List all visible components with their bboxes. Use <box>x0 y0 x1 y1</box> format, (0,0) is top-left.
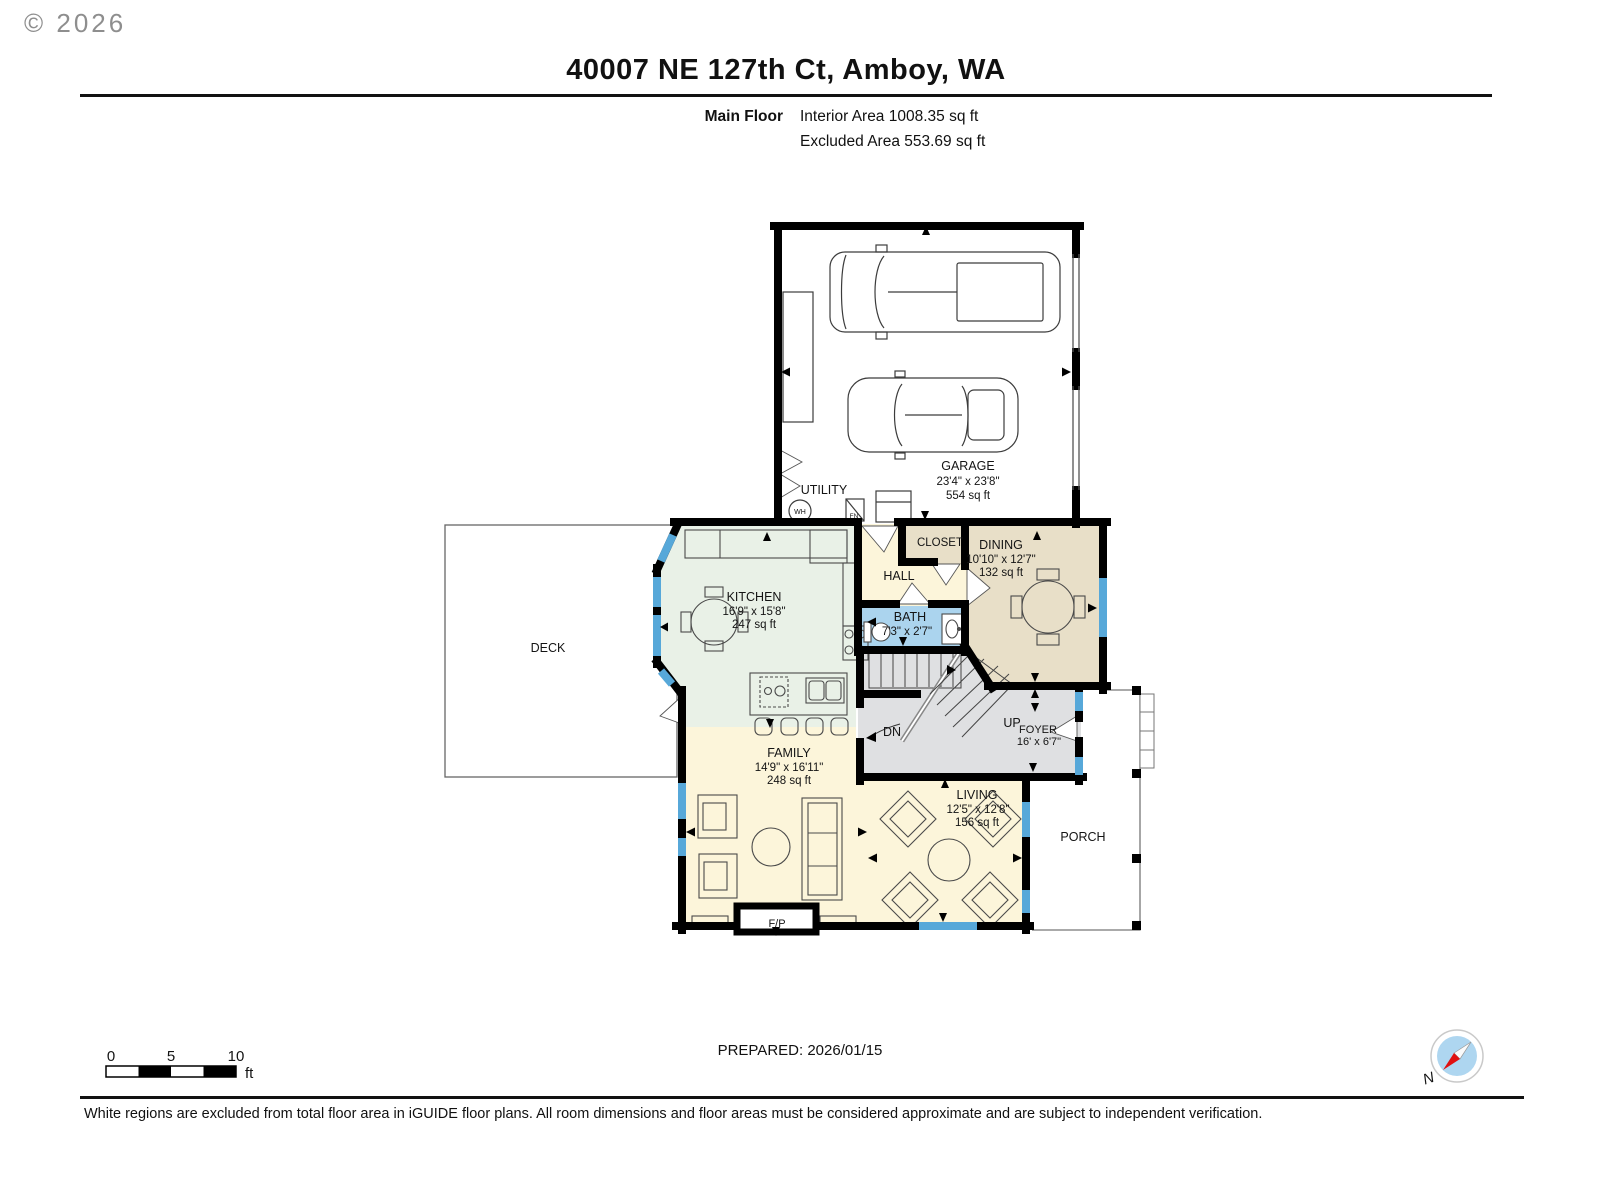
garage-side-door <box>780 474 800 498</box>
room-label-hall: HALL <box>883 569 914 583</box>
utility-appliance <box>876 491 911 522</box>
svg-text:10'10" x 12'7": 10'10" x 12'7" <box>966 554 1035 566</box>
room-label-family: FAMILY <box>767 746 811 760</box>
garage-side-door <box>780 450 802 474</box>
compass-icon: N <box>1421 1030 1483 1088</box>
svg-text:16' x 6'7": 16' x 6'7" <box>1017 736 1061 748</box>
garage-contents <box>783 245 1060 522</box>
scale-unit: ft <box>245 1065 254 1082</box>
room-label-kitchen: KITCHEN <box>727 590 782 604</box>
svg-text:7'3" x 2'7": 7'3" x 2'7" <box>882 626 932 638</box>
room-label-foyer: FOYER <box>1019 724 1057 736</box>
porch-post <box>1132 769 1141 778</box>
footer-divider <box>80 1096 1524 1099</box>
svg-text:247 sq ft: 247 sq ft <box>732 619 777 631</box>
compass-north-label: N <box>1421 1069 1437 1089</box>
svg-text:248 sq ft: 248 sq ft <box>767 775 812 787</box>
stairs-up-label: UP <box>1003 716 1020 730</box>
svg-text:554 sq ft: 554 sq ft <box>946 490 991 502</box>
fireplace-label: F/P <box>768 918 785 930</box>
water-heater-label: WH <box>794 509 806 516</box>
deck: DECK <box>445 525 677 777</box>
stairs-down-label: DN <box>883 725 901 739</box>
furnace-label: FN <box>850 513 859 520</box>
svg-text:156 sq ft: 156 sq ft <box>955 817 1000 829</box>
room-label-garage: GARAGE <box>941 459 995 473</box>
workbench <box>783 292 813 422</box>
sedan <box>848 371 1018 459</box>
svg-text:132 sq ft: 132 sq ft <box>979 567 1024 579</box>
toilet-tank <box>864 622 871 642</box>
porch-post <box>1132 854 1141 863</box>
living-fill <box>856 779 1028 927</box>
room-label-bath: BATH <box>894 610 926 624</box>
svg-text:14'9" x 16'11": 14'9" x 16'11" <box>755 762 824 774</box>
room-label-dining: DINING <box>979 538 1023 552</box>
porch-post <box>1132 686 1141 695</box>
prepared-date: PREPARED: 2026/01/15 <box>80 1042 1520 1059</box>
svg-text:12'5" x 12'8": 12'5" x 12'8" <box>946 804 1009 816</box>
porch-post <box>1132 921 1141 930</box>
room-label-living: LIVING <box>957 788 998 802</box>
disclaimer-text: White regions are excluded from total fl… <box>84 1106 1524 1122</box>
truck <box>830 245 1060 339</box>
room-label-closet: CLOSET <box>917 537 963 549</box>
room-label-deck: DECK <box>531 641 566 655</box>
svg-text:23'4" x 23'8": 23'4" x 23'8" <box>936 476 999 488</box>
room-label-utility: UTILITY <box>801 483 848 497</box>
svg-text:16'9" x 15'8": 16'9" x 15'8" <box>722 606 785 618</box>
floor-plan-svg: DECK PORCH <box>0 0 1600 1200</box>
room-label-porch: PORCH <box>1060 830 1105 844</box>
